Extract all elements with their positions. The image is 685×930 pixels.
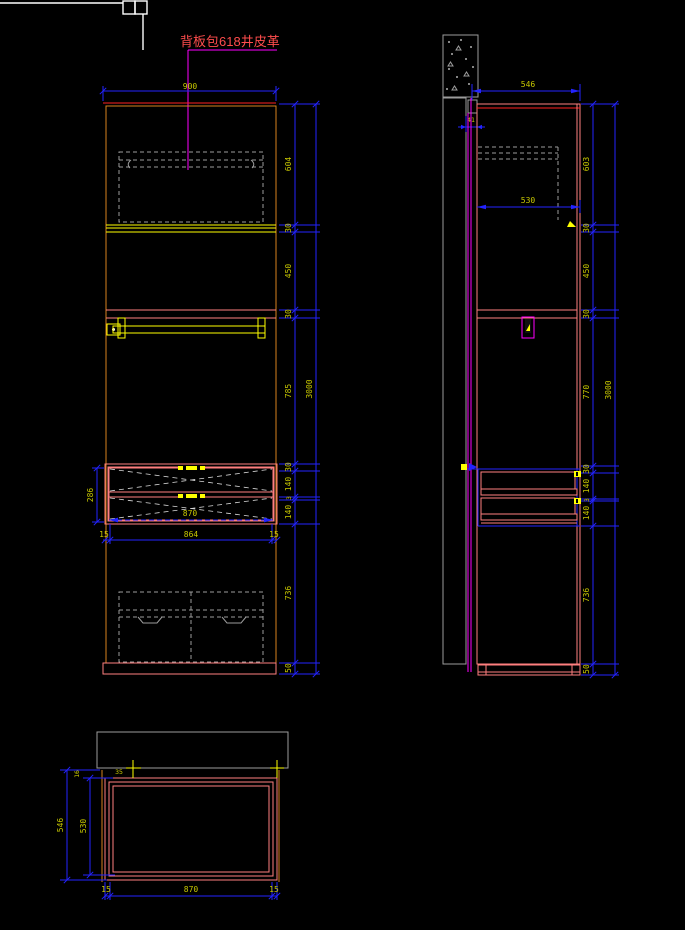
front-drawer-stack-dim: 286 (86, 465, 104, 525)
front-mid-shelf (106, 310, 276, 318)
dim-front-bottom-right: 15 (269, 530, 279, 539)
front-height-dims: 604 30 450 30 785 30 140 3 140 736 50 30… (279, 101, 320, 677)
side-drawer-unit (461, 463, 581, 526)
front-bottom-doors (119, 592, 263, 662)
wall-blocking (468, 100, 477, 113)
dim-se-seg10: 50 (582, 664, 591, 674)
dim-se-seg9: 736 (582, 588, 591, 603)
dim-fe-total: 3000 (305, 379, 314, 398)
dim-se-total: 3000 (604, 380, 613, 399)
dim-drawer-stack: 286 (86, 488, 95, 503)
drawer-handle (178, 494, 205, 498)
dim-plan-depth: 546 (56, 818, 65, 833)
dim-plan-bottom-right: 15 (269, 885, 279, 894)
side-baseboard (478, 665, 580, 675)
dim-fe-seg7: 3 (285, 496, 293, 500)
dim-plan-bottom-center: 870 (184, 885, 199, 894)
inner-depth-dim: 530 (477, 196, 580, 213)
dim-se-seg6: 140 (582, 479, 591, 494)
front-yellow-shelf (106, 225, 276, 232)
dim-fe-seg9: 736 (284, 586, 293, 601)
dim-front-bottom-center: 864 (184, 530, 199, 539)
side-elevation: 41 546 530 (443, 35, 619, 678)
plan-wall (97, 732, 288, 768)
dim-se-seg2: 450 (582, 264, 591, 279)
dim-plan-inner-depth: 530 (79, 819, 88, 834)
dim-se-seg0: 603 (582, 157, 591, 172)
dim-front-width: 900 (183, 82, 198, 91)
crosshair-cursor (0, 1, 147, 50)
back-panel (468, 98, 471, 672)
dim-corner-detail: 35 (115, 768, 123, 776)
wall-section (443, 98, 466, 664)
dim-se-seg5: 30 (582, 464, 591, 474)
dim-fe-seg6: 140 (284, 477, 293, 492)
dim-fe-seg2: 450 (284, 264, 293, 279)
front-drawer-unit: 870 (105, 464, 277, 524)
front-hanging-rod (107, 318, 265, 338)
dim-fe-seg10: 50 (284, 663, 293, 673)
side-rod-bracket (522, 317, 534, 338)
dim-inner-depth: 530 (521, 196, 536, 205)
plan-carcass (102, 770, 279, 882)
front-elevation: 870 900 286 15 864 15 (86, 82, 320, 677)
dim-plan-back-gap: 16 (73, 770, 81, 778)
dim-fe-seg3: 30 (284, 309, 293, 319)
plan-width-dims: 15 870 15 (101, 882, 280, 900)
depth-dim: 546 (472, 80, 580, 101)
dim-se-seg4: 770 (582, 385, 591, 400)
dim-fe-seg1: 30 (284, 223, 293, 233)
cad-viewport[interactable]: 背板包618井皮革 (0, 0, 685, 930)
front-baseboard (103, 663, 276, 674)
dim-fe-seg0: 604 (284, 157, 293, 172)
cad-canvas[interactable]: 背板包618井皮革 (0, 0, 685, 930)
dim-plan-bottom-left: 15 (101, 885, 111, 894)
side-carcass (477, 104, 580, 664)
dim-fe-seg5: 30 (284, 462, 293, 472)
dim-se-seg8: 140 (582, 506, 591, 521)
dim-front-bottom-left: 15 (99, 530, 109, 539)
dim-fe-seg8: 140 (284, 505, 293, 520)
dim-fe-seg4: 785 (284, 384, 293, 399)
dim-se-seg7: 3 (583, 498, 591, 502)
dim-se-seg1: 30 (582, 223, 591, 233)
back-panel-annotation: 背板包618井皮革 (180, 34, 280, 170)
front-width-dim: 900 (100, 82, 279, 101)
plan-corner-fixings: 35 (115, 760, 284, 778)
plan-depth-dims: 546 530 16 (56, 767, 115, 883)
side-top-hidden (478, 147, 558, 220)
front-bottom-dims: 15 864 15 (99, 524, 280, 544)
plan-view: 35 546 530 16 15 870 15 (56, 732, 288, 900)
dim-se-seg3: 30 (582, 309, 591, 319)
annotation-text: 背板包618井皮革 (180, 34, 280, 49)
side-height-dims: 603 30 450 30 770 30 140 3 140 736 50 30… (581, 101, 619, 678)
drawer-handle (178, 466, 205, 470)
dim-drawer-clear-width: 870 (183, 509, 198, 518)
marker-arrow (567, 221, 576, 227)
concrete-block (443, 35, 478, 97)
front-carcass (103, 103, 276, 674)
front-top-hidden-box (119, 152, 263, 222)
dim-depth: 546 (521, 80, 536, 89)
